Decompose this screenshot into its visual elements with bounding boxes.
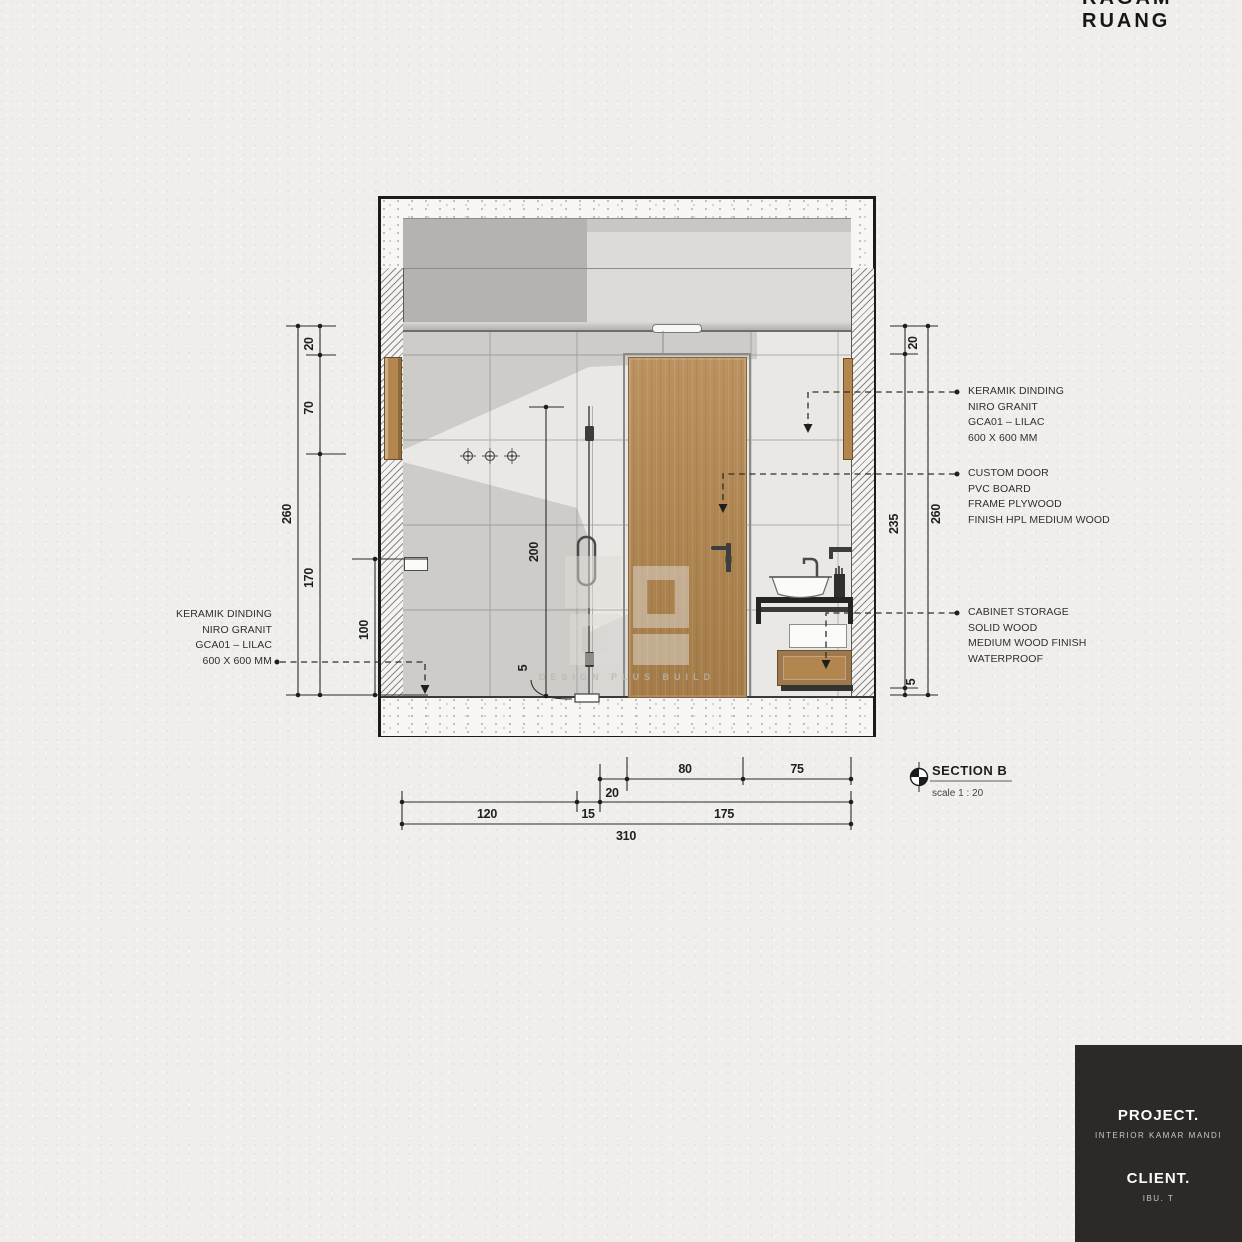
glass-clamp-top — [585, 426, 594, 441]
section-scale: scale 1 : 20 — [932, 788, 983, 799]
dim-right-235: 235 — [887, 514, 901, 534]
dim-glass-5: 5 — [516, 664, 530, 671]
dim-left-70: 70 — [302, 401, 316, 415]
arrow-right-keramik — [804, 424, 813, 433]
dim-left-170: 170 — [302, 568, 316, 588]
faucet — [804, 559, 817, 577]
annotation-line: NIRO GRANIT — [968, 400, 1158, 416]
arrow-left-keramik — [421, 685, 430, 694]
annotation-line: SOLID WOOD — [968, 621, 1158, 637]
shower-valves — [460, 448, 520, 464]
annotation-right-keramik: KERAMIK DINDING NIRO GRANIT GCA01 – LILA… — [968, 384, 1158, 446]
title-block: PROJECT. INTERIOR KAMAR MANDI CLIENT. IB… — [1075, 1045, 1242, 1242]
annotation-line: GCA01 – LILAC — [122, 638, 272, 654]
dim-right-20: 20 — [906, 336, 920, 350]
project-label: PROJECT. — [1075, 1107, 1242, 1124]
dim-bottom-75: 75 — [790, 762, 804, 776]
annotation-line: 600 X 600 MM — [968, 431, 1158, 447]
leader-left-keramik — [280, 662, 425, 686]
annotation-line: 600 X 600 MM — [122, 654, 272, 670]
annotation-line: KERAMIK DINDING — [968, 384, 1158, 400]
annotation-line: WATERPROOF — [968, 652, 1158, 668]
watermark-text: DESIGN PLUS BUILD — [517, 672, 737, 682]
dim-bottom-15: 15 — [581, 807, 595, 821]
leader-custom-door — [723, 474, 955, 504]
annotation-line: CUSTOM DOOR — [968, 466, 1158, 482]
section-title: SECTION B — [932, 763, 1007, 778]
logo-block — [570, 614, 621, 665]
dim-bottom-120: 120 — [477, 807, 497, 821]
annotation-line: NIRO GRANIT — [122, 623, 272, 639]
dim-left-100: 100 — [357, 620, 371, 640]
dim-left-20: 20 — [302, 337, 316, 351]
dim-glass-200: 200 — [527, 542, 541, 562]
annotation-line: KERAMIK DINDING — [122, 607, 272, 623]
dim-right-260: 260 — [929, 504, 943, 524]
arrow-cabinet — [822, 660, 831, 669]
logo-block — [565, 556, 621, 608]
annotation-line: CABINET STORAGE — [968, 605, 1158, 621]
client-value: IBU. T — [1075, 1194, 1242, 1203]
annotation-line: PVC BOARD — [968, 482, 1158, 498]
dim-bottom-20: 20 — [605, 786, 619, 800]
dim-right-5: 5 — [904, 678, 918, 685]
annotation-line: FINISH HPL MEDIUM WOOD — [968, 513, 1158, 529]
dim-left-260: 260 — [280, 504, 294, 524]
dim-bottom-310: 310 — [616, 829, 636, 843]
door-handle — [711, 543, 732, 572]
annotation-cabinet: CABINET STORAGE SOLID WOOD MEDIUM WOOD F… — [968, 605, 1158, 667]
wall-spout — [829, 547, 852, 559]
leader-cabinet — [826, 613, 955, 660]
annotation-line: FRAME PLYWOOD — [968, 497, 1158, 513]
logo-block — [633, 634, 689, 665]
dim-bottom-80: 80 — [678, 762, 692, 776]
annotation-line: GCA01 – LILAC — [968, 415, 1158, 431]
dim-bottom-175: 175 — [714, 807, 734, 821]
sheet-canvas: { "page": { "top_title": "RAGAM RUANG" }… — [0, 0, 1242, 1242]
annotation-custom-door: CUSTOM DOOR PVC BOARD FRAME PLYWOOD FINI… — [968, 466, 1158, 528]
client-label: CLIENT. — [1075, 1170, 1242, 1187]
toothbrush-cup — [834, 566, 845, 597]
logo-block — [633, 566, 689, 628]
project-value: INTERIOR KAMAR MANDI — [1075, 1131, 1242, 1140]
annotation-left-keramik: KERAMIK DINDING NIRO GRANIT GCA01 – LILA… — [122, 607, 272, 669]
arrow-custom-door — [719, 504, 728, 513]
watermark-logo: DESIGN PLUS BUILD — [552, 540, 712, 700]
annotation-line: MEDIUM WOOD FINISH — [968, 636, 1158, 652]
leader-right-keramik — [808, 392, 955, 424]
vessel-sink — [769, 577, 832, 598]
